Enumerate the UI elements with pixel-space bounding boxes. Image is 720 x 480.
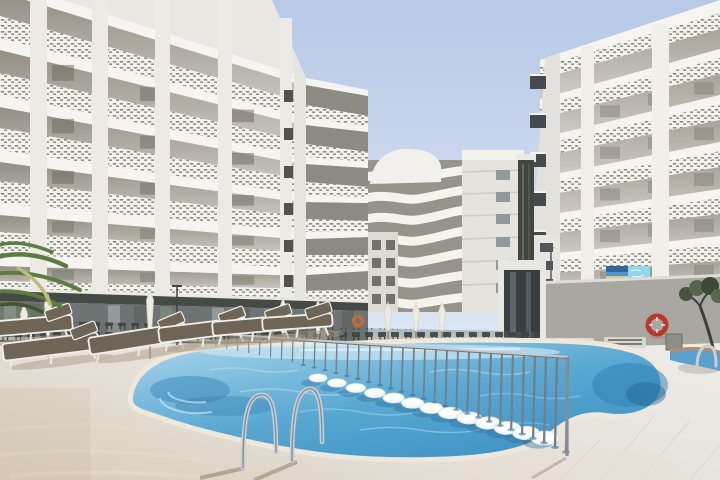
left-wing-floors — [306, 78, 368, 304]
left-building-pier — [30, 0, 47, 312]
balcony-door — [52, 119, 74, 133]
window-lintel — [530, 152, 546, 154]
window-lintel — [530, 74, 546, 76]
fence-post — [314, 340, 315, 367]
portal-glass-reflection — [510, 272, 516, 341]
balcony-opening — [306, 237, 368, 255]
fence-post — [292, 339, 293, 362]
right-building-pier — [581, 46, 594, 312]
stair-window — [284, 90, 293, 102]
perforated-railing — [306, 219, 368, 232]
window — [496, 192, 510, 202]
stool-top — [404, 398, 421, 405]
left-building-pier — [155, 0, 170, 312]
balcony-door — [52, 221, 74, 232]
window-lintel — [530, 113, 546, 115]
balcony-door — [694, 127, 714, 140]
balcony-door — [694, 219, 714, 232]
balcony-door — [52, 171, 74, 184]
balcony-door — [232, 195, 254, 206]
stair-window — [284, 166, 293, 178]
window — [530, 76, 546, 89]
balcony-door — [600, 105, 620, 117]
stair-window — [284, 203, 293, 215]
balcony-door — [232, 236, 254, 246]
fence-post — [303, 340, 304, 365]
balcony-door — [600, 230, 620, 242]
stair-window — [284, 240, 293, 252]
balcony-door — [232, 110, 254, 123]
stair-window — [284, 275, 293, 287]
window — [386, 294, 395, 304]
stool-top — [385, 393, 402, 399]
balcony-door — [694, 173, 714, 186]
fence-post — [336, 342, 337, 373]
balcony-door — [232, 276, 254, 285]
balcony-door — [600, 188, 620, 200]
stool-top — [330, 379, 345, 384]
window — [386, 258, 395, 268]
window — [372, 258, 381, 268]
left-building-pier — [92, 0, 108, 312]
balcony-door — [232, 153, 254, 165]
left-building-corner — [294, 52, 306, 312]
water-deep-patch — [626, 382, 666, 406]
fence-post — [325, 341, 326, 370]
window — [372, 276, 381, 286]
banner-photo-sea — [606, 272, 628, 276]
stool-top — [348, 384, 363, 390]
deck-warm-patch — [0, 388, 90, 480]
window — [372, 294, 381, 304]
window — [386, 276, 395, 286]
window — [496, 214, 510, 224]
right-building-pier — [652, 24, 669, 312]
stool-top — [311, 374, 325, 379]
left-building-pier — [280, 18, 292, 312]
middle-tower-parapet — [462, 150, 524, 160]
balcony-door — [52, 65, 74, 81]
window — [386, 240, 395, 250]
balcony-door — [600, 147, 620, 159]
window — [530, 115, 546, 128]
window — [496, 170, 510, 180]
stool-top — [423, 403, 441, 410]
stool-top — [367, 389, 383, 395]
lamp-post-lamp — [549, 246, 554, 251]
utility-box — [666, 334, 682, 350]
portal-glass-reflection — [526, 272, 531, 341]
window — [496, 237, 510, 247]
balcony-door — [694, 82, 714, 94]
left-building-pier — [218, 0, 232, 312]
water-sparkle — [300, 349, 520, 350]
stair-window — [284, 128, 293, 140]
balcony-opening — [306, 202, 368, 221]
window — [372, 240, 381, 250]
photo-hotel-pool-courtyard — [0, 0, 720, 480]
